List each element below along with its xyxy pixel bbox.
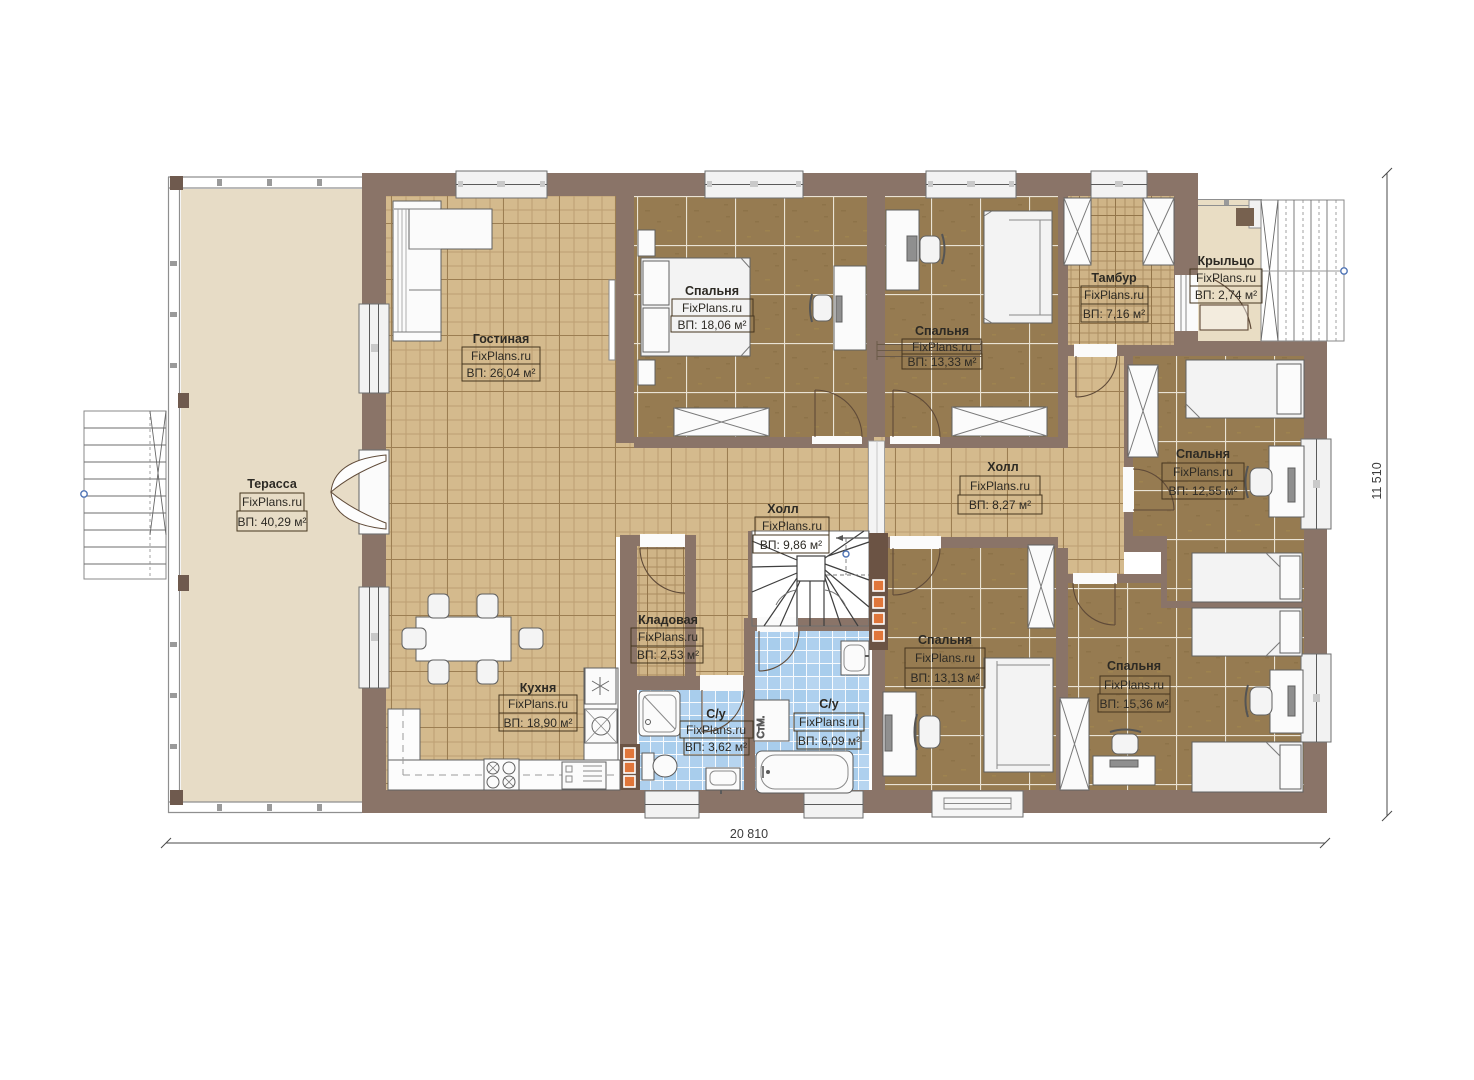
svg-text:Кладовая: Кладовая [638, 613, 698, 627]
svg-text:СтМ.: СтМ. [756, 716, 767, 739]
svg-text:20 810: 20 810 [730, 827, 768, 841]
svg-text:Крыльцо: Крыльцо [1198, 254, 1255, 268]
svg-text:Гостиная: Гостиная [473, 332, 530, 346]
svg-text:FixPlans.ru: FixPlans.ru [799, 715, 859, 729]
svg-text:FixPlans.ru: FixPlans.ru [682, 301, 742, 315]
svg-text:ВП: 2,74 м²: ВП: 2,74 м² [1195, 288, 1257, 302]
svg-text:ВП: 7,16 м²: ВП: 7,16 м² [1083, 307, 1145, 321]
svg-text:ВП: 8,27 м²: ВП: 8,27 м² [969, 498, 1031, 512]
svg-text:ВП: 12,55 м²: ВП: 12,55 м² [1169, 484, 1238, 498]
svg-text:Спальня: Спальня [1107, 659, 1161, 673]
svg-text:ВП: 13,33 м²: ВП: 13,33 м² [908, 355, 977, 369]
svg-text:11 510: 11 510 [1370, 462, 1384, 499]
svg-text:FixPlans.ru: FixPlans.ru [1173, 465, 1233, 479]
svg-text:FixPlans.ru: FixPlans.ru [638, 630, 698, 644]
svg-text:ВП: 6,09 м²: ВП: 6,09 м² [798, 734, 860, 748]
svg-text:Терасса: Терасса [247, 477, 298, 491]
svg-text:FixPlans.ru: FixPlans.ru [1196, 271, 1256, 285]
svg-text:ВП: 3,62 м²: ВП: 3,62 м² [685, 740, 747, 754]
svg-text:Тамбур: Тамбур [1091, 271, 1137, 285]
svg-text:FixPlans.ru: FixPlans.ru [471, 349, 531, 363]
svg-text:Спальня: Спальня [685, 284, 739, 298]
svg-text:Холл: Холл [987, 460, 1018, 474]
svg-text:Кухня: Кухня [520, 681, 557, 695]
svg-text:FixPlans.ru: FixPlans.ru [242, 495, 302, 509]
svg-text:ВП: 15,36 м²: ВП: 15,36 м² [1100, 697, 1169, 711]
svg-text:FixPlans.ru: FixPlans.ru [970, 479, 1030, 493]
svg-text:ВП: 18,90 м²: ВП: 18,90 м² [504, 716, 573, 730]
svg-text:FixPlans.ru: FixPlans.ru [508, 697, 568, 711]
svg-text:FixPlans.ru: FixPlans.ru [1084, 288, 1144, 302]
svg-text:FixPlans.ru: FixPlans.ru [686, 723, 746, 737]
svg-text:ВП: 40,29 м²: ВП: 40,29 м² [238, 515, 307, 529]
svg-text:С/у: С/у [706, 707, 726, 721]
svg-text:FixPlans.ru: FixPlans.ru [912, 340, 972, 354]
svg-text:ВП: 9,86 м²: ВП: 9,86 м² [760, 538, 822, 552]
svg-text:ВП: 2,53 м²: ВП: 2,53 м² [637, 648, 699, 662]
svg-text:FixPlans.ru: FixPlans.ru [915, 651, 975, 665]
svg-text:Спальня: Спальня [1176, 447, 1230, 461]
svg-text:Спальня: Спальня [918, 633, 972, 647]
svg-text:ВП: 26,04 м²: ВП: 26,04 м² [467, 366, 536, 380]
svg-text:FixPlans.ru: FixPlans.ru [1104, 678, 1164, 692]
svg-text:Холл: Холл [767, 502, 798, 516]
svg-text:Спальня: Спальня [915, 324, 969, 338]
svg-text:FixPlans.ru: FixPlans.ru [762, 519, 822, 533]
svg-text:ВП: 13,13 м²: ВП: 13,13 м² [911, 671, 980, 685]
svg-text:ВП: 18,06 м²: ВП: 18,06 м² [678, 318, 747, 332]
svg-text:С/у: С/у [819, 697, 839, 711]
